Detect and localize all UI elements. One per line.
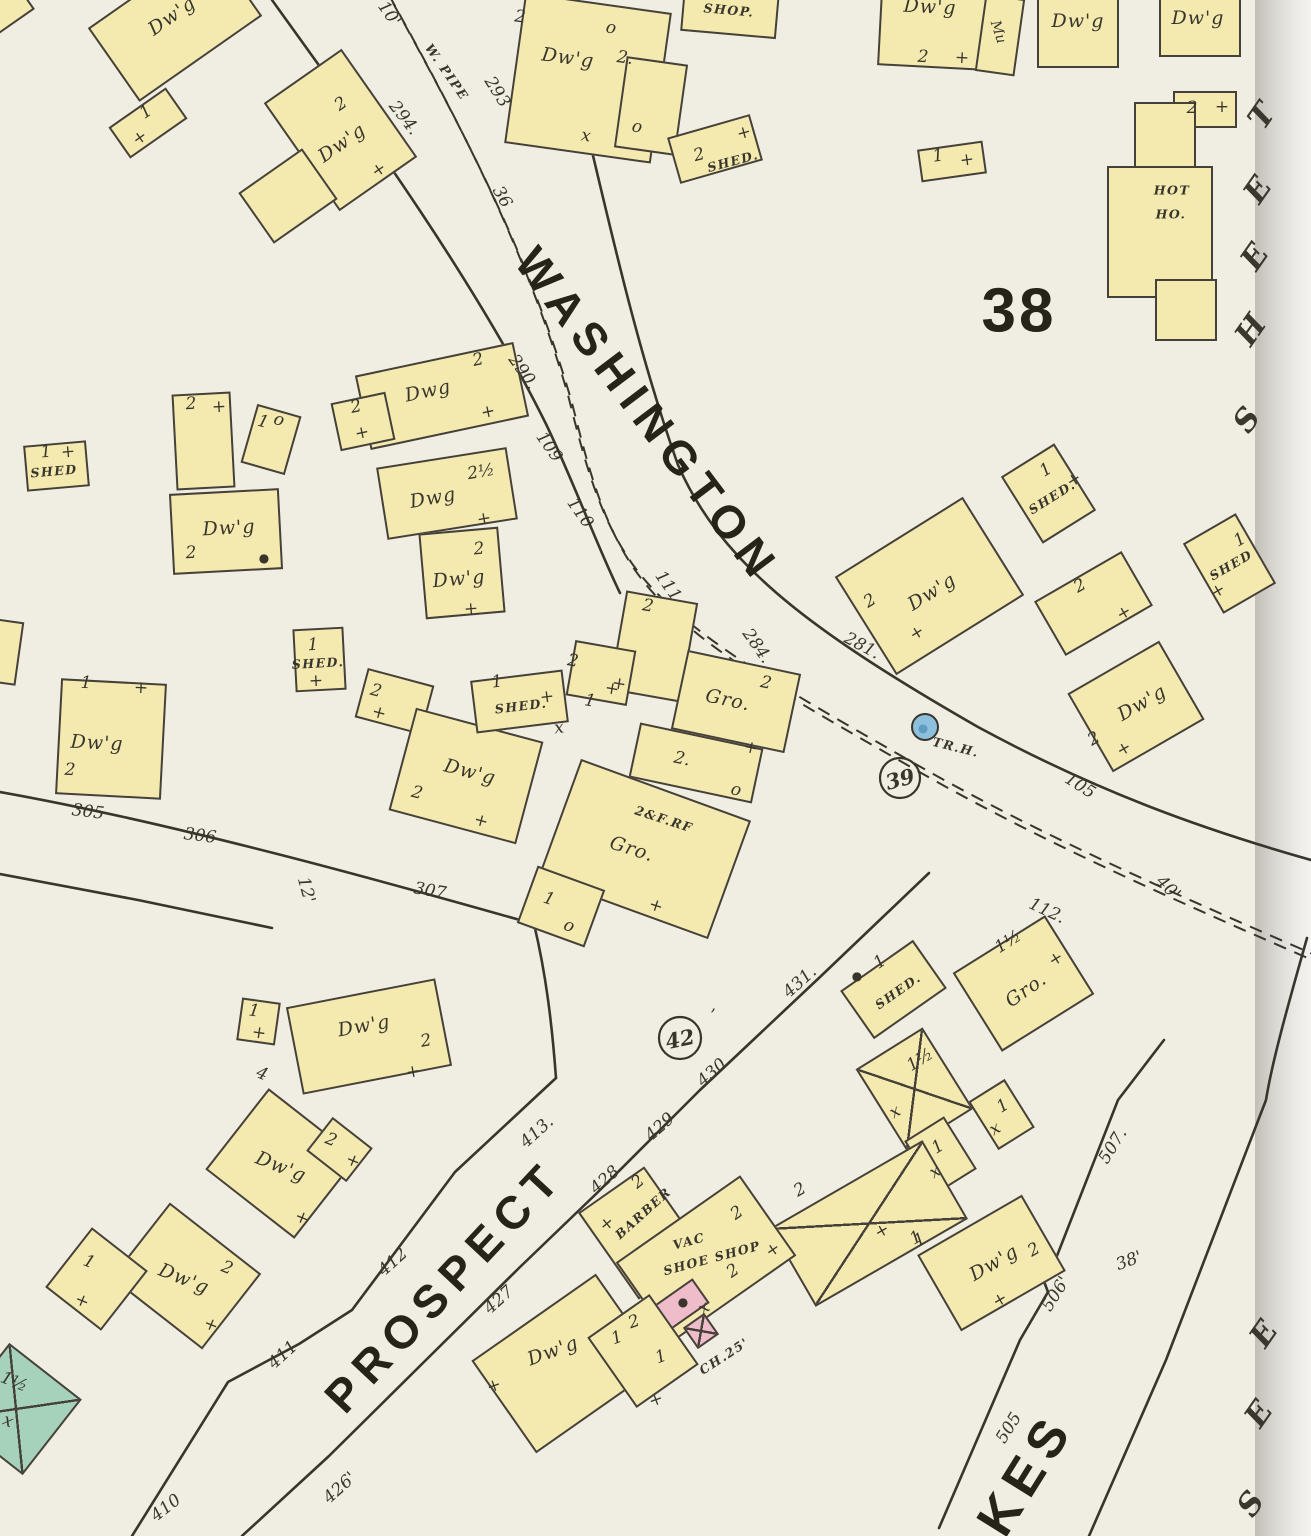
stove-dot: ● [852,969,862,983]
map-label: Dw'g [70,731,124,756]
map-label: 2 [1187,98,1198,118]
map-label: + [211,397,226,418]
map-label: SHED. [291,654,344,672]
map-label: + [251,1022,268,1044]
map-label: + [463,598,479,619]
stove-dot: ● [259,551,269,565]
map-label: 2 [185,543,197,564]
map-label: 1 [40,442,53,463]
sykes-se-edge [1089,938,1307,1536]
tick-mark: ’ [710,1006,715,1026]
map-label: Dw'g [432,566,487,593]
block-number-38: 38 [982,276,1057,347]
map-label: + [539,686,556,708]
map-label: 2 [917,47,929,68]
building-gro-annex [566,640,637,706]
map-label: Dw'g [1052,10,1105,32]
map-label: 1 [307,635,319,656]
map-label: + [133,678,148,699]
map-label: + [959,149,976,171]
map-label: 1 [490,671,503,692]
lane-upper-edge [0,792,556,1078]
map-label: Dw'g [903,0,957,19]
building-hot-house [1155,279,1217,341]
street-number: 305 [71,800,106,824]
map-label: + [308,671,323,692]
map-label: + [60,441,76,462]
sanborn-map-canvas: WASHINGTONPROSPECTKES383942’TR.H.TEEHSEE… [0,0,1311,1536]
map-label: HOT [1154,183,1191,198]
map-label: 2 [64,760,76,781]
map-label: Dw'g [1172,7,1225,29]
street-number: 306 [183,824,218,848]
lane-lower-edge [0,874,272,928]
map-label: HO. [1156,207,1187,222]
map-label: + [1215,97,1229,117]
map-label: 2 [185,394,197,415]
map-label: Dw'g [202,516,256,541]
map-label: 1 [80,673,92,694]
map-label: + [954,48,969,69]
map-label: 2 [473,539,486,560]
stove-dot: ● [678,1295,688,1309]
map-label: x [553,717,565,738]
water-trough-center [919,725,928,734]
map-label: 2. [616,47,635,69]
